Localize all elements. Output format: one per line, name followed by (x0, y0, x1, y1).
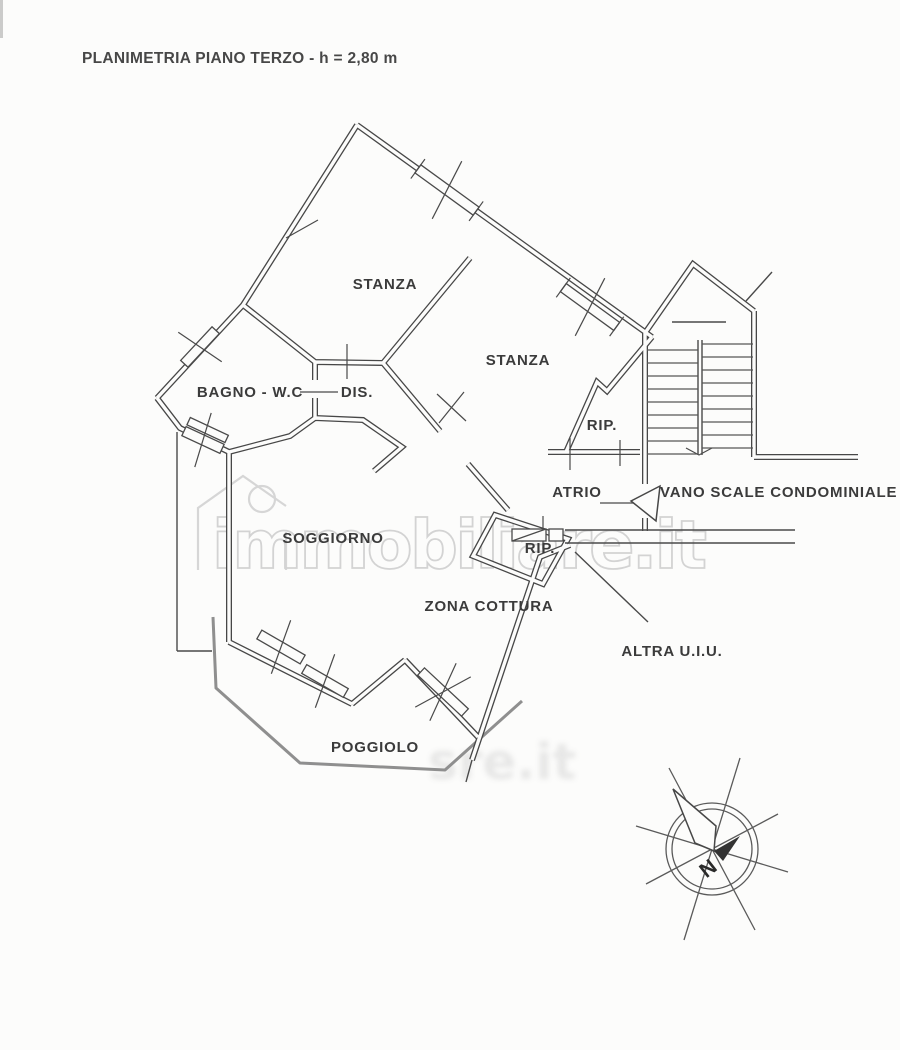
room-label-stanza-2: STANZA (486, 352, 551, 369)
room-label-atrio: ATRIO (552, 484, 602, 501)
window-icon (399, 143, 495, 237)
scan-edge-artifact (0, 0, 3, 38)
room-label-bagno: BAGNO - W.C (197, 384, 303, 401)
walls (157, 125, 858, 760)
label-vano-scale: VANO SCALE CONDOMINIALE (660, 484, 897, 501)
window-icon (172, 406, 234, 475)
floor-plan-canvas: immobiliare.it sre.it (0, 0, 900, 1050)
room-label-soggiorno: SOGGIORNO (282, 530, 383, 547)
window-icon (544, 262, 635, 353)
plan-title: PLANIMETRIA PIANO TERZO - h = 2,80 m (82, 50, 398, 67)
watermark-blur-text: sre.it (428, 733, 576, 791)
room-label-poggiolo: POGGIOLO (331, 739, 419, 756)
watermark: immobiliare.it sre.it (198, 476, 708, 791)
room-label-zona-cottura: ZONA COTTURA (424, 598, 553, 615)
room-label-rip-1: RIP. (587, 417, 617, 434)
compass-icon: N (636, 758, 788, 940)
floorplan-scan-page: immobiliare.it sre.it (0, 0, 900, 1050)
staircase (647, 344, 753, 454)
room-label-stanza-1: STANZA (353, 276, 418, 293)
room-label-dis: DIS. (341, 384, 373, 401)
window-icon (401, 650, 486, 735)
room-label-rip-2: RIP. (525, 540, 555, 557)
label-altra-uiu: ALTRA U.I.U. (621, 643, 722, 660)
